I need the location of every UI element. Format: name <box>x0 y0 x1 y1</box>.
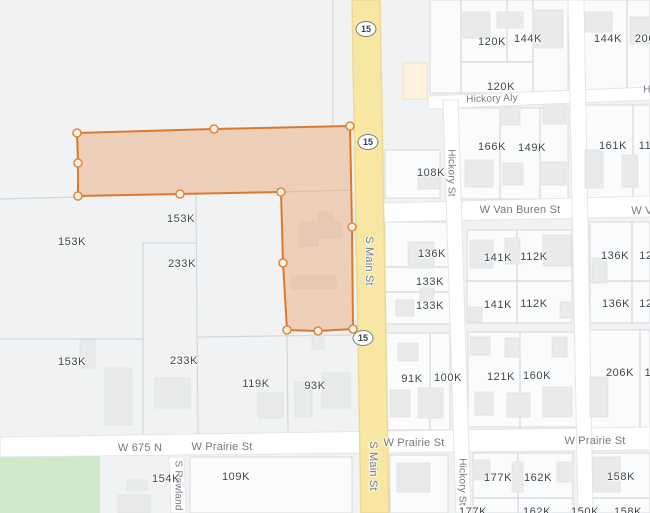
parcel-vertex-handle[interactable] <box>73 129 81 137</box>
map-viewport[interactable]: Hickory AlyHHickory StW Van Buren StW VS… <box>0 0 650 513</box>
parcel-vertex-handle[interactable] <box>277 188 285 196</box>
route-15-shield: 15 <box>353 330 374 346</box>
parcel-vertex-handle[interactable] <box>314 327 322 335</box>
parcel-vertex-handle[interactable] <box>210 125 218 133</box>
parcel-vertex-handle[interactable] <box>283 326 291 334</box>
route-15-shield: 15 <box>358 134 379 150</box>
selected-parcel-polygon[interactable] <box>77 126 353 331</box>
parcel-vertex-handle[interactable] <box>346 122 354 130</box>
parcel-vertex-handle[interactable] <box>74 159 82 167</box>
parcel-vertex-handle[interactable] <box>176 190 184 198</box>
parcel-vertex-handle[interactable] <box>279 259 287 267</box>
route-15-shield: 15 <box>356 21 377 37</box>
parcel-vertex-handle[interactable] <box>74 192 82 200</box>
selection-layer <box>0 0 650 513</box>
parcel-vertex-handle[interactable] <box>348 223 356 231</box>
